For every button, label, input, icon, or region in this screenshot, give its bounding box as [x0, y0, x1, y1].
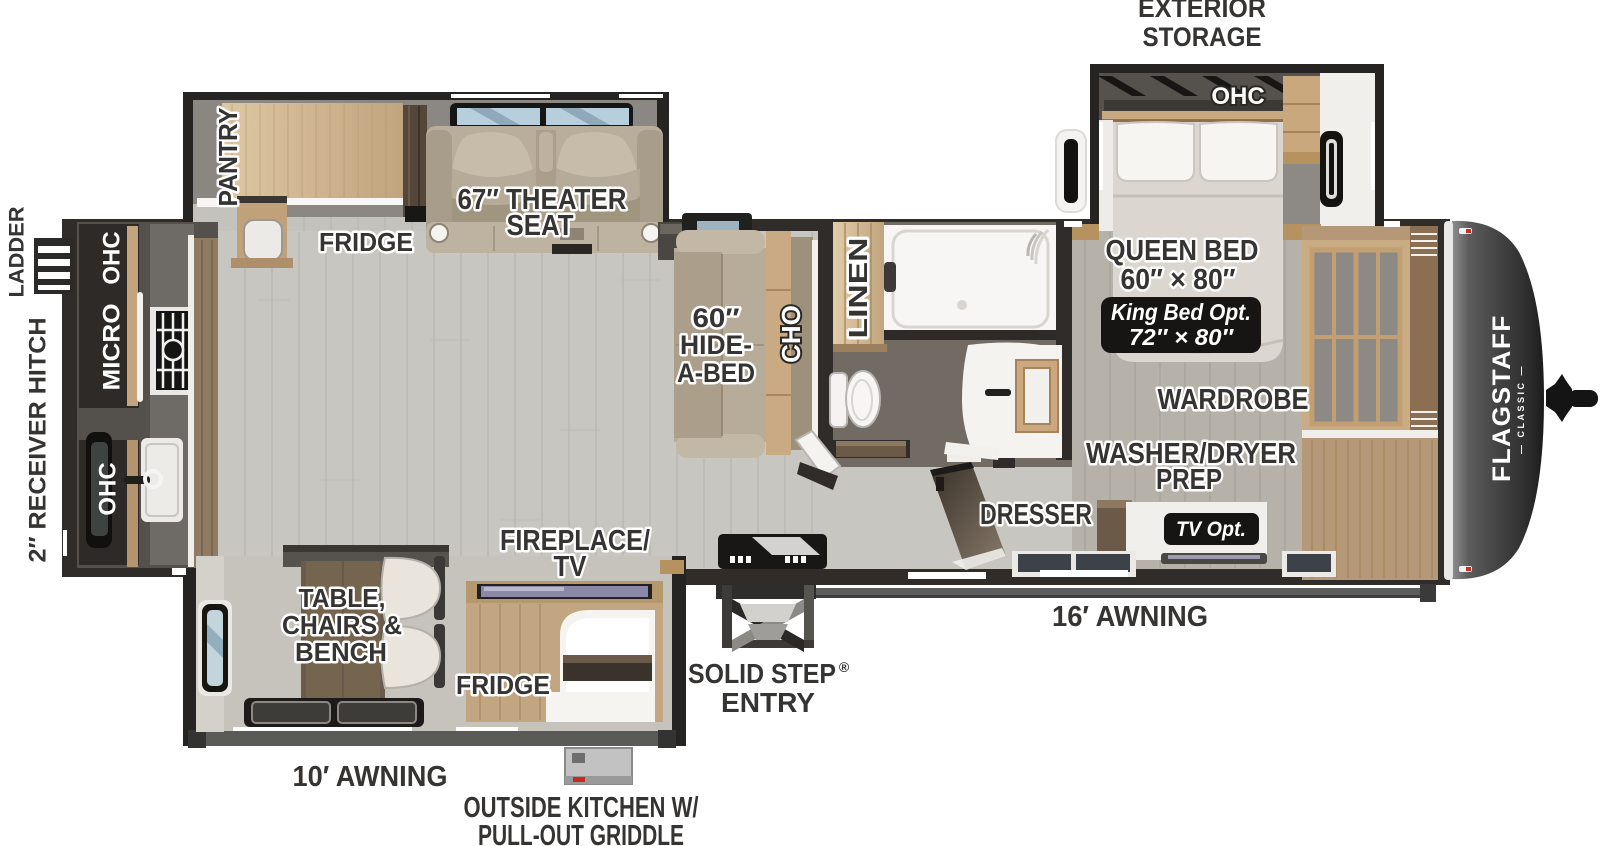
svg-text:OHC: OHC	[1211, 83, 1264, 110]
svg-text:CHAIRS &: CHAIRS &	[282, 610, 402, 640]
svg-text:A-BED: A-BED	[677, 358, 755, 388]
svg-text:PULL-OUT GRIDDLE: PULL-OUT GRIDDLE	[478, 820, 684, 846]
svg-text:16′ AWNING: 16′ AWNING	[1052, 601, 1208, 633]
svg-text:SOLID STEP: SOLID STEP	[688, 658, 836, 689]
svg-text:TABLE,: TABLE,	[299, 583, 386, 613]
svg-text:King Bed Opt.: King Bed Opt.	[1111, 299, 1251, 325]
svg-text:HIDE-: HIDE-	[680, 330, 752, 360]
svg-text:WARDROBE: WARDROBE	[1158, 384, 1309, 416]
svg-text:10′ AWNING: 10′ AWNING	[293, 761, 448, 793]
svg-text:FRIDGE: FRIDGE	[319, 227, 413, 257]
svg-text:®: ®	[839, 659, 850, 675]
svg-text:TV Opt.: TV Opt.	[1176, 518, 1246, 541]
svg-text:60″ × 80″: 60″ × 80″	[1121, 264, 1236, 296]
svg-text:PANTRY: PANTRY	[213, 108, 243, 207]
svg-text:MICRO: MICRO	[99, 304, 126, 391]
svg-text:LINEN: LINEN	[843, 238, 873, 339]
svg-text:PREP: PREP	[1156, 464, 1222, 496]
svg-text:TV: TV	[554, 551, 588, 583]
svg-text:72″ × 80″: 72″ × 80″	[1129, 324, 1234, 350]
svg-text:STORAGE: STORAGE	[1143, 22, 1262, 52]
svg-text:OHC: OHC	[95, 462, 122, 515]
svg-text:CHO: CHO	[776, 305, 806, 363]
svg-text:LADDER: LADDER	[6, 207, 29, 298]
svg-text:SEAT: SEAT	[507, 210, 574, 242]
svg-text:EXTERIOR: EXTERIOR	[1138, 0, 1266, 23]
svg-text:FLAGSTAFF: FLAGSTAFF	[1488, 314, 1516, 482]
svg-text:60″: 60″	[693, 303, 740, 333]
svg-text:QUEEN BED: QUEEN BED	[1106, 235, 1259, 267]
svg-text:— CLASSIC —: — CLASSIC —	[1516, 364, 1526, 454]
svg-text:DRESSER: DRESSER	[980, 499, 1092, 531]
svg-text:OHC: OHC	[99, 231, 126, 284]
svg-text:ENTRY: ENTRY	[721, 687, 815, 718]
svg-text:2″ RECEIVER HITCH: 2″ RECEIVER HITCH	[25, 318, 52, 563]
svg-text:BENCH: BENCH	[295, 637, 387, 667]
svg-text:FRIDGE: FRIDGE	[456, 670, 550, 700]
